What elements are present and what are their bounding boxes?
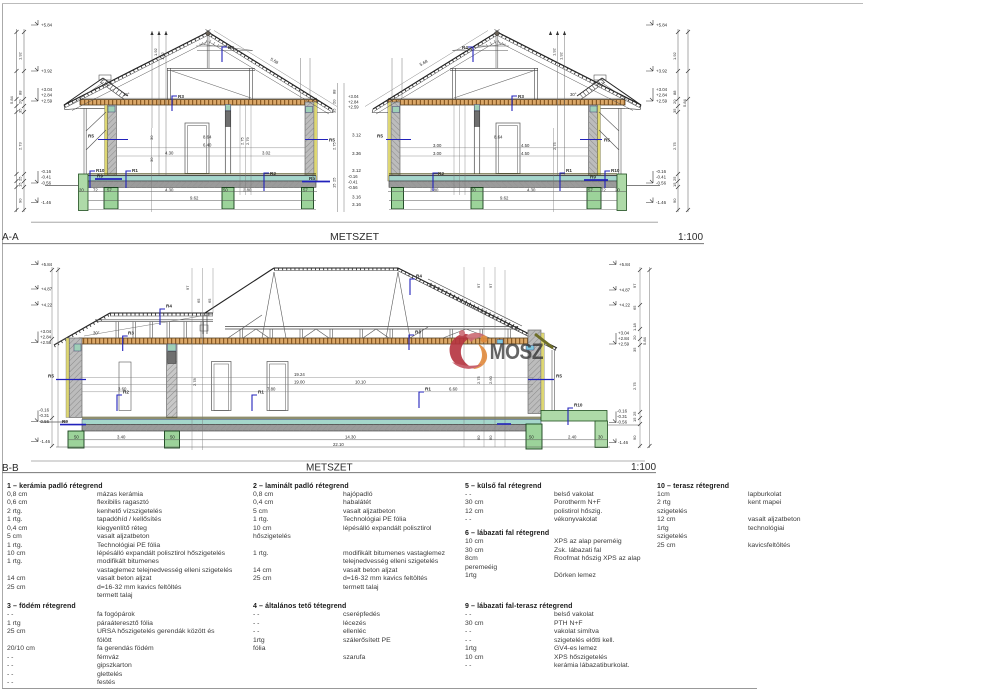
svg-text:+2.59: +2.59 (41, 99, 53, 104)
svg-text:MOSZ: MOSZ (490, 340, 544, 365)
svg-text:R5: R5 (604, 138, 610, 143)
svg-text:50: 50 (471, 188, 476, 193)
svg-text:-0.41: -0.41 (348, 180, 358, 185)
svg-text:R10: R10 (611, 168, 620, 173)
svg-text:4.50: 4.50 (521, 151, 530, 156)
svg-text:R2: R2 (438, 171, 444, 176)
svg-text:1.92: 1.92 (18, 51, 23, 60)
svg-text:METSZET: METSZET (330, 231, 380, 243)
svg-text:97: 97 (185, 285, 190, 290)
svg-text:+3.04: +3.04 (348, 94, 359, 99)
svg-text:15: 15 (332, 183, 337, 188)
svg-text:1:100: 1:100 (678, 232, 703, 243)
svg-text:+2.84: +2.84 (41, 93, 53, 98)
svg-text:3.12: 3.12 (352, 168, 361, 173)
svg-text:19.24: 19.24 (294, 372, 305, 377)
svg-text:25: 25 (18, 176, 23, 181)
svg-text:R3: R3 (518, 94, 524, 99)
svg-text:30: 30 (149, 157, 154, 162)
svg-text:-0.16: -0.16 (39, 408, 50, 413)
svg-text:R4: R4 (228, 45, 234, 50)
svg-text:5.68: 5.68 (419, 58, 429, 67)
svg-text:6.60: 6.60 (449, 387, 458, 392)
svg-text:+4.22: +4.22 (619, 303, 631, 308)
svg-text:2.75: 2.75 (332, 141, 337, 150)
svg-text:57: 57 (303, 188, 308, 193)
svg-text:-0.56: -0.56 (348, 185, 358, 190)
svg-text:+2.84: +2.84 (618, 336, 630, 341)
svg-text:R4: R4 (166, 304, 172, 309)
svg-text:7.80: 7.80 (267, 387, 276, 392)
svg-text:Rb: Rb (309, 176, 315, 181)
svg-text:88: 88 (18, 90, 23, 95)
svg-text:-0.16: -0.16 (348, 174, 358, 179)
svg-text:50: 50 (74, 435, 79, 440)
svg-text:9.62: 9.62 (190, 196, 199, 201)
svg-text:65: 65 (207, 298, 212, 303)
svg-text:88: 88 (332, 89, 337, 94)
svg-text:R3: R3 (178, 94, 184, 99)
svg-text:2.40: 2.40 (568, 435, 577, 440)
svg-text:-0.16: -0.16 (656, 169, 667, 174)
svg-text:90: 90 (18, 198, 23, 203)
svg-text:60: 60 (476, 435, 481, 440)
svg-text:35: 35 (332, 108, 337, 113)
svg-text:20: 20 (332, 99, 337, 104)
svg-text:4.30: 4.30 (527, 188, 536, 193)
svg-text:+2.59: +2.59 (656, 99, 668, 104)
svg-text:30°: 30° (570, 92, 577, 97)
svg-text:A-A: A-A (2, 232, 19, 243)
svg-text:R3: R3 (128, 331, 134, 336)
svg-text:2.79: 2.79 (245, 136, 250, 145)
svg-text:-1.46: -1.46 (656, 200, 667, 205)
svg-text:1.18: 1.18 (632, 322, 637, 331)
svg-text:R1: R1 (566, 168, 572, 173)
svg-text:5.84: 5.84 (9, 95, 14, 104)
svg-text:1:100: 1:100 (631, 462, 656, 473)
svg-text:1.92: 1.92 (153, 47, 158, 56)
svg-text:1.92: 1.92 (559, 51, 564, 60)
svg-text:R9: R9 (62, 419, 68, 424)
svg-text:30°: 30° (123, 92, 130, 97)
svg-text:-0.16: -0.16 (41, 169, 52, 174)
svg-text:R5: R5 (556, 374, 562, 379)
svg-text:R5: R5 (377, 134, 383, 139)
svg-text:35: 35 (672, 108, 677, 113)
svg-text:R5: R5 (88, 134, 94, 139)
svg-text:+5.84: +5.84 (41, 262, 53, 267)
svg-text:19.00: 19.00 (294, 379, 305, 384)
svg-text:3.00: 3.00 (433, 143, 442, 148)
svg-text:R1: R1 (132, 168, 138, 173)
svg-text:4.50: 4.50 (521, 143, 530, 148)
svg-text:72: 72 (93, 188, 98, 193)
svg-text:22.10: 22.10 (333, 442, 344, 447)
svg-text:30: 30 (149, 135, 154, 140)
svg-text:15: 15 (672, 182, 677, 187)
svg-text:-0.31: -0.31 (39, 413, 50, 418)
svg-text:4.30: 4.30 (165, 188, 174, 193)
svg-text:+3.04: +3.04 (41, 87, 53, 92)
svg-text:25: 25 (332, 177, 337, 182)
svg-text:R2: R2 (123, 390, 129, 395)
svg-text:5.84: 5.84 (642, 336, 647, 345)
svg-text:10.10: 10.10 (355, 379, 366, 384)
svg-text:8.64: 8.64 (494, 135, 503, 140)
svg-text:R5: R5 (48, 374, 54, 379)
svg-text:20: 20 (672, 99, 677, 104)
svg-text:65: 65 (196, 298, 201, 303)
svg-text:R3: R3 (415, 330, 421, 335)
svg-text:90: 90 (632, 435, 637, 440)
svg-text:2.75: 2.75 (672, 141, 677, 150)
svg-text:+4.87: +4.87 (41, 287, 53, 292)
svg-text:50: 50 (529, 435, 534, 440)
svg-text:14.30: 14.30 (345, 435, 356, 440)
svg-text:+3.92: +3.92 (41, 69, 53, 74)
svg-text:+4.87: +4.87 (619, 288, 631, 293)
svg-text:R2: R2 (270, 171, 276, 176)
svg-text:20: 20 (79, 188, 84, 193)
svg-text:6.40: 6.40 (203, 143, 212, 148)
svg-text:3.12: 3.12 (352, 133, 361, 138)
svg-text:72: 72 (601, 188, 606, 193)
svg-text:-0.56: -0.56 (39, 419, 50, 424)
svg-text:+2.84: +2.84 (656, 93, 668, 98)
svg-text:35: 35 (632, 347, 637, 352)
svg-text:+3.04: +3.04 (40, 329, 52, 334)
svg-text:65: 65 (632, 305, 637, 310)
svg-text:15: 15 (632, 417, 637, 422)
svg-text:-0.41: -0.41 (41, 175, 52, 180)
svg-text:97: 97 (488, 283, 493, 288)
svg-text:2.75: 2.75 (552, 141, 557, 150)
svg-text:3.16: 3.16 (352, 195, 361, 200)
svg-text:2.73: 2.73 (18, 141, 23, 150)
svg-text:+3.92: +3.92 (656, 69, 668, 74)
svg-text:97: 97 (632, 283, 637, 288)
svg-text:R4: R4 (462, 45, 468, 50)
svg-text:-0.56: -0.56 (656, 181, 667, 186)
svg-text:+4.22: +4.22 (41, 303, 53, 308)
svg-text:-0.56: -0.56 (617, 420, 628, 425)
svg-text:R5: R5 (329, 138, 335, 143)
svg-text:3.00: 3.00 (433, 151, 442, 156)
svg-text:R9: R9 (97, 174, 103, 179)
svg-text:60: 60 (488, 435, 493, 440)
svg-text:5.68: 5.68 (270, 57, 280, 66)
svg-text:+5.84: +5.84 (656, 23, 668, 28)
svg-text:3.36: 3.36 (352, 151, 361, 156)
svg-text:35: 35 (18, 108, 23, 113)
svg-text:3.40: 3.40 (117, 435, 126, 440)
svg-text:20: 20 (615, 188, 620, 193)
svg-text:15: 15 (18, 182, 23, 187)
svg-text:50: 50 (223, 188, 228, 193)
svg-text:+2.58: +2.58 (40, 340, 52, 345)
svg-text:2.80: 2.80 (243, 188, 252, 193)
svg-text:R9: R9 (590, 175, 596, 180)
svg-text:20: 20 (632, 335, 637, 340)
svg-text:+2.84: +2.84 (40, 335, 52, 340)
svg-text:2.80: 2.80 (430, 188, 439, 193)
svg-text:+3.04: +3.04 (618, 331, 630, 336)
svg-text:-1.46: -1.46 (40, 439, 51, 444)
svg-text:+5.84: +5.84 (41, 23, 53, 28)
svg-text:90: 90 (672, 198, 677, 203)
svg-text:B-B: B-B (2, 463, 19, 474)
svg-text:25: 25 (672, 176, 677, 181)
svg-text:-0.31: -0.31 (617, 414, 628, 419)
svg-text:R10: R10 (574, 403, 583, 408)
svg-text:50: 50 (170, 435, 175, 440)
svg-text:METSZET: METSZET (306, 463, 353, 474)
svg-text:2.75: 2.75 (476, 375, 481, 384)
svg-text:1.92: 1.92 (160, 51, 165, 60)
svg-text:4.30: 4.30 (165, 151, 174, 156)
svg-text:2.75: 2.75 (240, 136, 245, 145)
svg-text:+2.59: +2.59 (348, 105, 359, 110)
svg-text:20: 20 (18, 99, 23, 104)
svg-text:57: 57 (107, 188, 112, 193)
svg-text:30°: 30° (93, 331, 100, 336)
svg-text:57: 57 (588, 188, 593, 193)
svg-text:9.62: 9.62 (500, 196, 509, 201)
svg-text:-0.16: -0.16 (617, 409, 628, 414)
svg-text:-1.46: -1.46 (41, 200, 52, 205)
svg-text:2.60: 2.60 (488, 375, 493, 384)
svg-text:1.92: 1.92 (672, 51, 677, 60)
svg-text:R10: R10 (96, 168, 105, 173)
svg-text:30: 30 (598, 435, 603, 440)
svg-text:+2.59: +2.59 (618, 342, 630, 347)
svg-text:+3.04: +3.04 (656, 87, 668, 92)
svg-text:8.64: 8.64 (203, 135, 212, 140)
svg-text:1.92: 1.92 (552, 47, 557, 56)
svg-text:-1.46: -1.46 (618, 440, 629, 445)
svg-text:-0.41: -0.41 (656, 175, 667, 180)
svg-text:R4: R4 (416, 274, 422, 279)
svg-text:5.84: 5.84 (682, 98, 687, 107)
svg-text:R1: R1 (425, 387, 431, 392)
svg-text:88: 88 (672, 90, 677, 95)
svg-text:2.78: 2.78 (192, 377, 197, 386)
svg-text:+5.84: +5.84 (619, 262, 631, 267)
svg-text:25: 25 (632, 411, 637, 416)
svg-text:2.75: 2.75 (632, 381, 637, 390)
svg-text:3.16: 3.16 (352, 202, 361, 207)
svg-text:3.02: 3.02 (262, 151, 271, 156)
svg-text:97: 97 (476, 283, 481, 288)
svg-text:-0.56: -0.56 (41, 181, 52, 186)
svg-text:R1: R1 (258, 390, 264, 395)
